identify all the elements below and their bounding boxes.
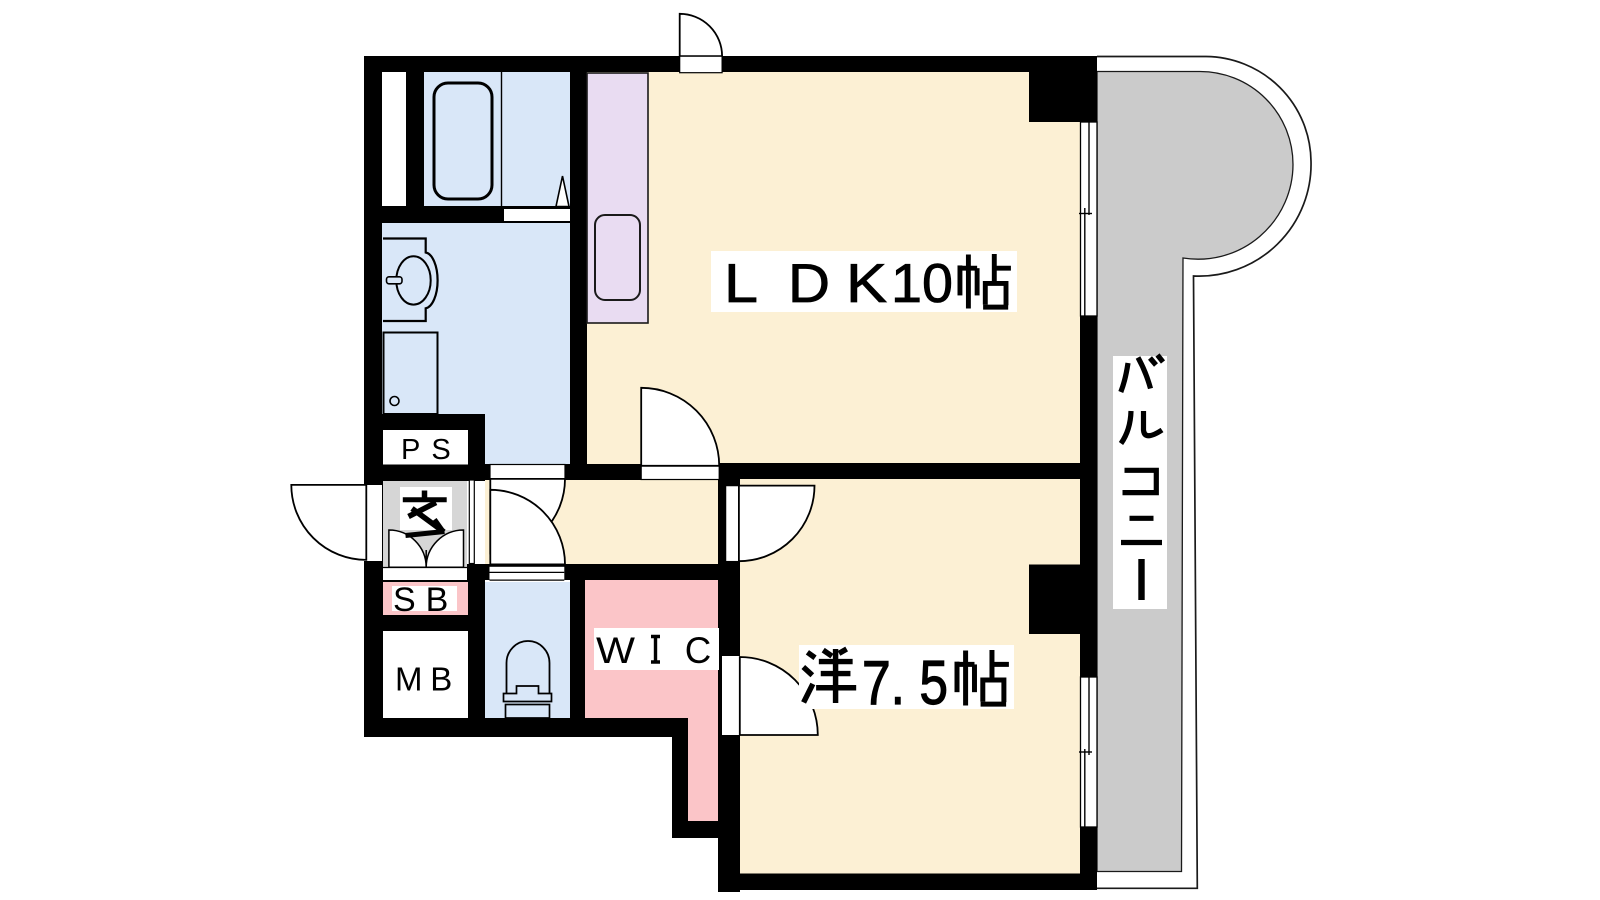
svg-text:7. 5: 7. 5 <box>862 649 948 718</box>
svg-text:10: 10 <box>891 252 953 314</box>
svg-text:PS: PS <box>401 434 462 466</box>
svg-text:MB: MB <box>395 661 460 698</box>
svg-text:SB: SB <box>393 581 458 619</box>
svg-text:L: L <box>724 252 758 314</box>
svg-text:W: W <box>596 630 635 671</box>
svg-text:C: C <box>685 630 712 671</box>
svg-text:D: D <box>788 252 830 314</box>
svg-text:K: K <box>846 252 887 314</box>
